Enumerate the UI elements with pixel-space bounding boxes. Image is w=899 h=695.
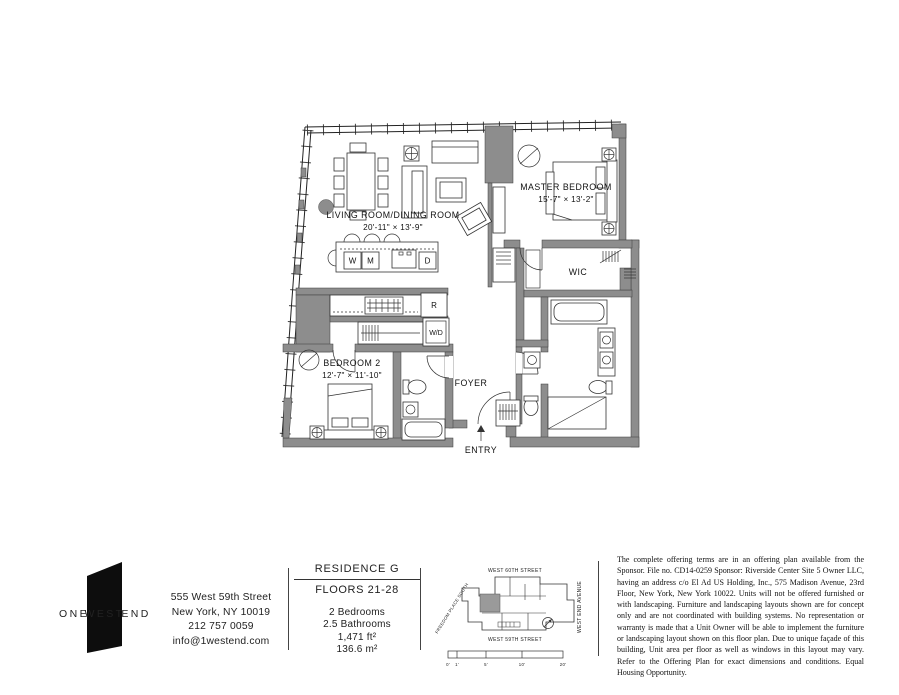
scale-bar (448, 651, 563, 658)
address-line2: New York, NY 10019 (150, 606, 292, 621)
entry-label: ENTRY (465, 445, 497, 455)
bedroom2-bed (324, 384, 376, 439)
dining-table-set (334, 143, 388, 220)
washer-dryer-label: W/D (429, 330, 443, 337)
foyer-label: FOYER (455, 378, 488, 388)
sofa (432, 141, 478, 163)
master-bedroom-dims: 15'-7" × 13'-2" (538, 195, 594, 204)
hall-wardrobe (493, 187, 515, 282)
refrigerator-label: R (431, 301, 437, 310)
logo-word-end: END (121, 608, 150, 620)
address-line1: 555 West 59th Street (150, 591, 292, 606)
avenue-right-label: WEST END AVENUE (577, 581, 583, 633)
svg-text:20': 20' (560, 662, 567, 667)
street-top-label: WEST 60TH STREET (488, 568, 542, 574)
floorplan-sheet: W M D R W (0, 0, 899, 695)
living-room-dims: 20'-11" × 13'-9" (363, 223, 423, 232)
bedroom2-dims: 12'-7" × 11'-10" (322, 371, 382, 380)
living-room-label: LIVING ROOM/DINING ROOM (326, 210, 459, 220)
area-sqft: 1,471 ft² (294, 632, 420, 644)
washer-label: W (349, 257, 357, 266)
residence-floors: FLOORS 21-28 (294, 580, 420, 596)
entry-arrow-icon (477, 425, 485, 441)
contact-block: 555 West 59th Street New York, NY 10019 … (150, 591, 292, 649)
armchair (436, 178, 466, 202)
powder-room-fixtures (524, 352, 540, 416)
floor-plan-drawing: W M D R W (0, 0, 899, 555)
master-bath-fixtures (548, 300, 615, 429)
lounge-chair-angled (456, 202, 491, 235)
residence-info-block: RESIDENCE G FLOORS 21-28 2 Bedrooms 2.5 … (294, 563, 420, 657)
svg-text:5': 5' (484, 662, 488, 667)
compass-icon (543, 618, 554, 629)
bedrooms-count: 2 Bedrooms (294, 607, 420, 619)
balcony-ticks (498, 622, 520, 627)
ceiling-fixture-icon (404, 146, 419, 161)
microwave-label: M (367, 257, 374, 266)
foyer-closet (496, 400, 520, 426)
legal-disclaimer: The complete offering terms are in an of… (617, 554, 864, 678)
wic-label: WIC (569, 267, 588, 277)
kitchen-island: W M D (328, 234, 438, 272)
master-fan-chair (518, 145, 540, 167)
bathrooms-count: 2.5 Bathrooms (294, 619, 420, 631)
kitchen-counter: R (330, 293, 447, 317)
dishwasher-label: D (425, 257, 431, 266)
site-key-map: WEST 60TH STREET WEST 59TH STREET WEST E… (440, 555, 600, 690)
bedroom2-label: BEDROOM 2 (323, 358, 380, 368)
master-bedroom-label: MASTER BEDROOM (520, 182, 612, 192)
divider-2 (420, 568, 421, 650)
scale-labels: 0' 1' 5' 10' 20' (446, 662, 566, 667)
svg-text:0': 0' (446, 662, 450, 667)
bedroom2-fan-chair (299, 350, 319, 370)
svg-text:1': 1' (455, 662, 459, 667)
residence-title: RESIDENCE G (294, 563, 420, 580)
laundry-closet: W/D (358, 318, 449, 346)
street-bottom-label: WEST 59TH STREET (488, 637, 542, 643)
svg-text:10': 10' (519, 662, 526, 667)
area-sqm: 136.6 m² (294, 644, 420, 656)
bath2-fixtures (402, 380, 445, 440)
email-address[interactable]: info@1westend.com (150, 635, 292, 650)
logo-word-west: WEST (85, 608, 125, 620)
residence-location-highlight (480, 594, 500, 612)
phone-number: 212 757 0059 (150, 620, 292, 635)
street-left-label: FREEDOM PLACE SOUTH (434, 582, 469, 634)
